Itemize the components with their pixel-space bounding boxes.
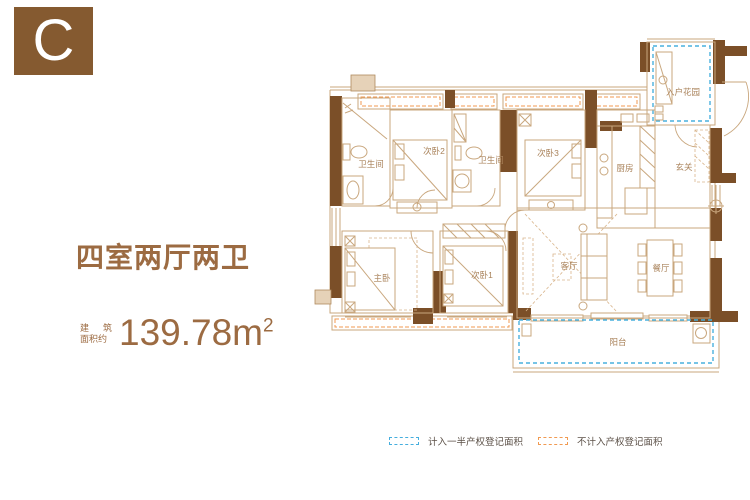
room-label-balcony: 阳台 (609, 337, 626, 347)
area-prefix-line1: 建筑 (80, 323, 112, 334)
plan-type-badge: C (14, 7, 93, 75)
room-label-bedroom-2: 次卧2 (423, 146, 445, 156)
half-area-label: 计入一半产权登记面积 (428, 434, 523, 448)
room-label-kitchen: 厨房 (616, 163, 633, 173)
room-label-living-room: 客厅 (560, 261, 578, 271)
legend: 计入一半产权登记面积 不计入产权登记面积 (389, 434, 663, 448)
top-bay-strips (358, 94, 640, 109)
room-label-bedroom-1: 次卧1 (471, 270, 493, 280)
excluded-area-swatch-icon (538, 437, 568, 445)
half-area-swatch-icon (389, 437, 419, 445)
bathroom-2-area: 卫生间 (452, 110, 504, 206)
layout-title: 四室两厅两卫 (76, 236, 250, 276)
bedroom-2-area: 次卧2 (390, 110, 452, 213)
room-label-bedroom-3: 次卧3 (537, 148, 559, 158)
bedroom-1-area: 次卧1 (440, 224, 508, 313)
master-bedroom-area: 主卧 (342, 231, 433, 313)
area-value: 139.78m2 (119, 314, 274, 351)
area-prefix-label: 建筑 面积约 (80, 323, 112, 345)
balcony-area: 阳台 (519, 320, 713, 363)
living-room-area: 客厅 (517, 208, 710, 318)
room-label-foyer: 玄关 (675, 162, 693, 172)
bathroom-1-area: 卫生间 (342, 98, 393, 206)
area-prefix-line2: 面积约 (80, 334, 112, 345)
floorplan: 入户花园 卫生间 次卧2 卫生间 (285, 18, 750, 430)
room-label-bathroom-1: 卫生间 (358, 159, 384, 169)
legend-item-excluded-area: 不计入产权登记面积 (538, 434, 663, 448)
corridor (342, 206, 508, 231)
legend-item-half-area: 计入一半产权登记面积 (389, 434, 523, 448)
excluded-area-label: 不计入产权登记面积 (577, 434, 663, 448)
area-block: 建筑 面积约 139.78m2 (80, 314, 274, 351)
entry-garden-area: 入户花园 (647, 42, 715, 125)
plan-type-letter: C (33, 12, 75, 70)
floorplan-svg: 入户花园 卫生间 次卧2 卫生间 (285, 18, 750, 430)
room-label-bathroom-2: 卫生间 (478, 155, 504, 165)
room-label-dining-room: 餐厅 (652, 263, 670, 273)
room-label-entry-garden: 入户花园 (666, 87, 700, 97)
room-label-master-bedroom: 主卧 (373, 273, 391, 283)
